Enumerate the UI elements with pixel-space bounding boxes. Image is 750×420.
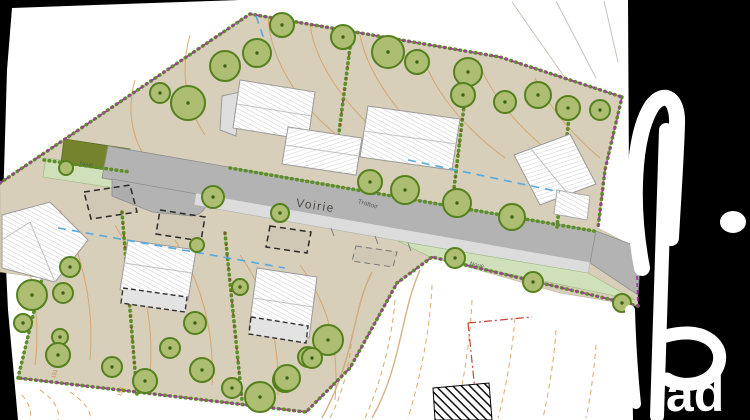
tree <box>494 91 516 113</box>
tree <box>232 279 248 295</box>
tree <box>391 176 419 204</box>
tree <box>499 204 525 230</box>
tree <box>46 343 70 367</box>
tree <box>245 382 275 412</box>
tree <box>184 312 206 334</box>
tree <box>53 283 73 303</box>
site-plan-screenshot: Voirie Trottoir Noue Noue 151 153 iad <box>0 0 750 420</box>
existing-building <box>433 383 492 420</box>
tree <box>523 272 543 292</box>
tree <box>210 51 240 81</box>
tree <box>60 257 80 277</box>
tree <box>405 50 429 74</box>
tree <box>372 36 404 68</box>
tree <box>243 39 271 67</box>
house-roof <box>249 268 317 343</box>
tree <box>525 82 551 108</box>
tree <box>274 365 300 391</box>
tree <box>190 358 214 382</box>
tree <box>556 96 580 120</box>
tree <box>59 161 73 175</box>
tree <box>202 186 224 208</box>
tree <box>102 357 122 377</box>
tree <box>302 348 322 368</box>
tree <box>270 13 294 37</box>
tree <box>17 280 47 310</box>
tree <box>331 25 355 49</box>
tree <box>445 248 465 268</box>
tree <box>133 369 157 393</box>
tree <box>451 83 475 107</box>
tree <box>160 338 180 358</box>
tree <box>222 378 242 398</box>
tree <box>271 204 289 222</box>
tree <box>443 189 471 217</box>
tree <box>171 86 205 120</box>
tree <box>14 314 32 332</box>
tree <box>454 58 482 86</box>
tree <box>590 100 610 120</box>
iad-logo: iad <box>652 366 724 420</box>
tree <box>190 238 204 252</box>
tree <box>358 170 382 194</box>
site-plan-drawing: Voirie Trottoir Noue Noue 151 153 iad <box>0 0 750 420</box>
tree <box>150 83 170 103</box>
watermark-dot <box>720 211 746 233</box>
